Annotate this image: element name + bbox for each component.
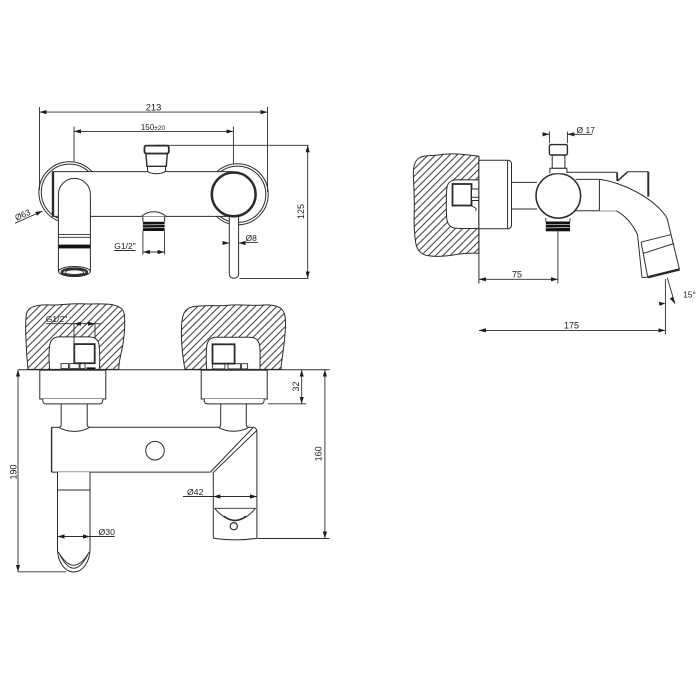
svg-text:G1/2": G1/2" — [46, 314, 67, 324]
svg-text:Ø 17: Ø 17 — [577, 125, 596, 135]
svg-text:213: 213 — [146, 103, 162, 113]
svg-text:150±20: 150±20 — [141, 123, 166, 132]
svg-text:160: 160 — [314, 446, 324, 461]
svg-text:190: 190 — [9, 464, 19, 479]
svg-text:125: 125 — [296, 204, 306, 219]
svg-text:Ø42: Ø42 — [187, 487, 204, 497]
svg-text:32: 32 — [291, 381, 301, 391]
svg-text:G1/2": G1/2" — [114, 241, 135, 251]
svg-text:Ø30: Ø30 — [99, 527, 116, 537]
svg-text:175: 175 — [564, 320, 579, 330]
svg-text:15°: 15° — [683, 289, 696, 299]
svg-text:75: 75 — [512, 270, 522, 280]
svg-text:Ø8: Ø8 — [246, 233, 258, 243]
